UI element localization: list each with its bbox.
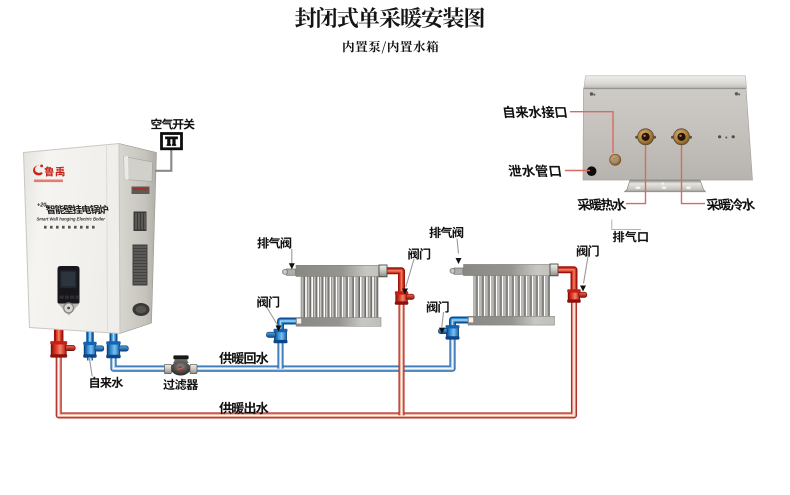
svg-text:Smart Wall hanging Electric Bo: Smart Wall hanging Electric Boiler (37, 217, 106, 222)
svg-text:+20: +20 (37, 203, 46, 209)
